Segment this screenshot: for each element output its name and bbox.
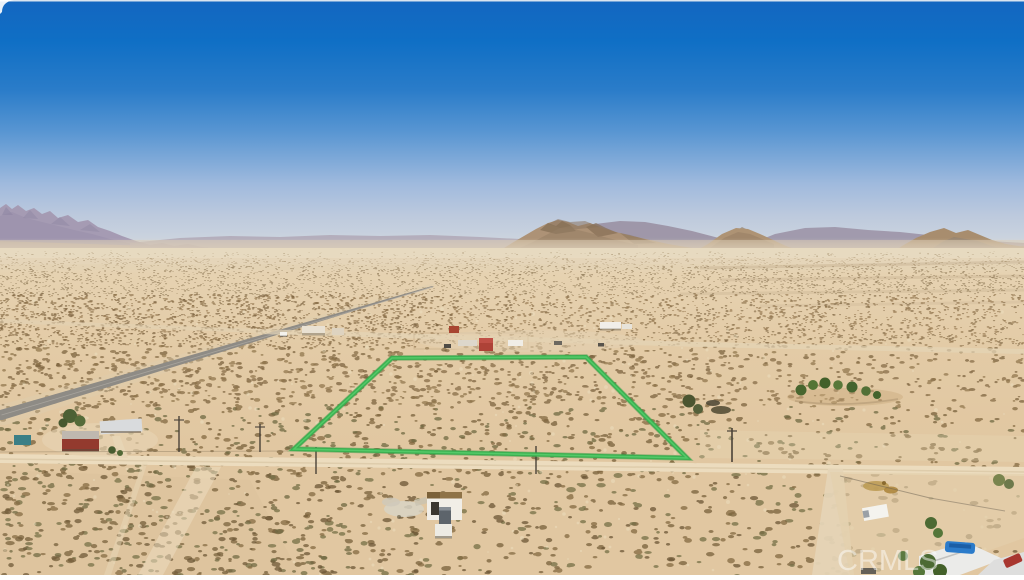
svg-text:CRMLS: CRMLS — [837, 545, 939, 575]
